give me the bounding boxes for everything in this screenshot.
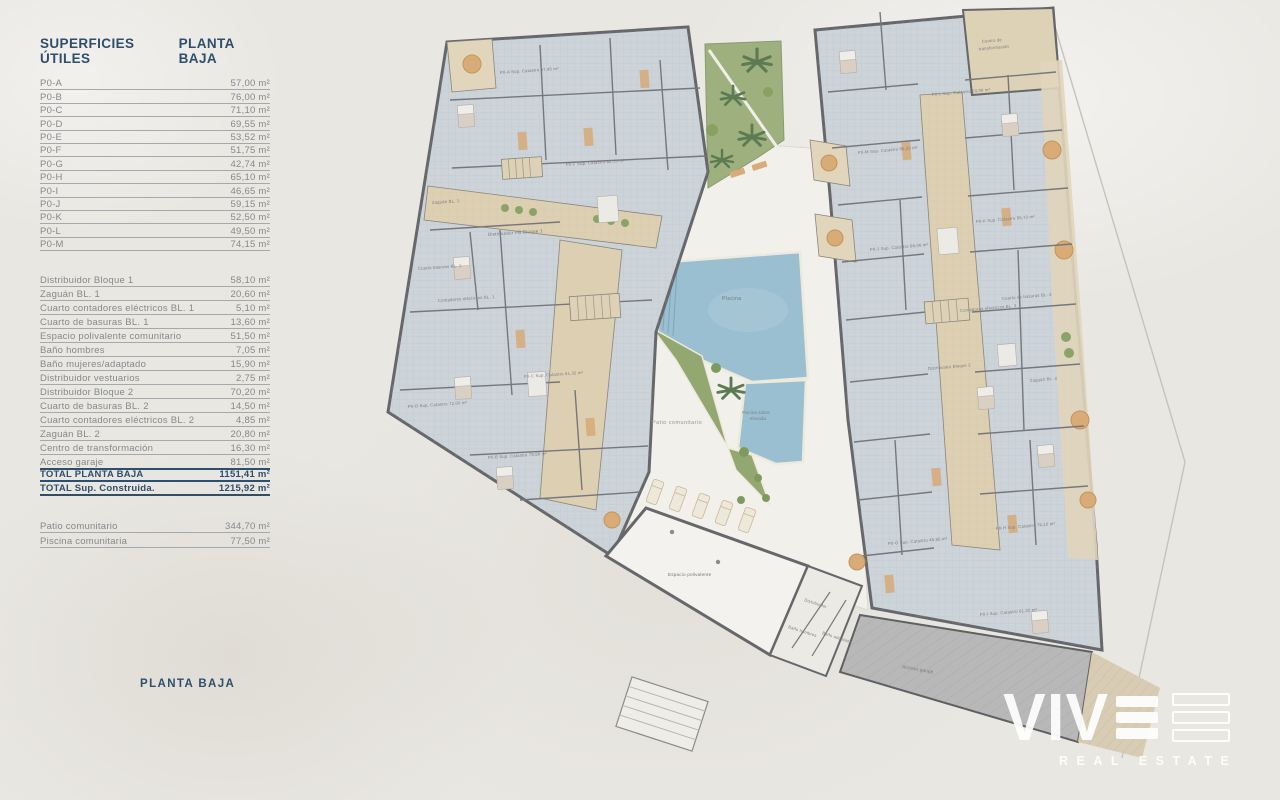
pool-label: Piscina <box>722 296 742 302</box>
logo-wordmark: VIV <box>1003 689 1109 746</box>
exterior-stair <box>616 677 708 751</box>
logo-e-bars-icon <box>1116 696 1158 739</box>
espacio-label: Espacio polivalente <box>668 572 712 577</box>
page: SUPERFICIES ÚTILES PLANTA BAJA P0-A 57,0… <box>0 0 1280 800</box>
stairs-block1 <box>569 293 621 320</box>
vive-logo: VIV REAL ESTATE <box>1003 690 1237 768</box>
logo-tagline: REAL ESTATE <box>1059 754 1237 768</box>
raised-pool-label-1: Piscina sobre <box>742 410 770 415</box>
patio-label: Patio comunitario <box>652 420 702 426</box>
raised-pool-label-2: elevada <box>750 416 767 421</box>
logo-outline-bars-icon <box>1172 693 1230 742</box>
